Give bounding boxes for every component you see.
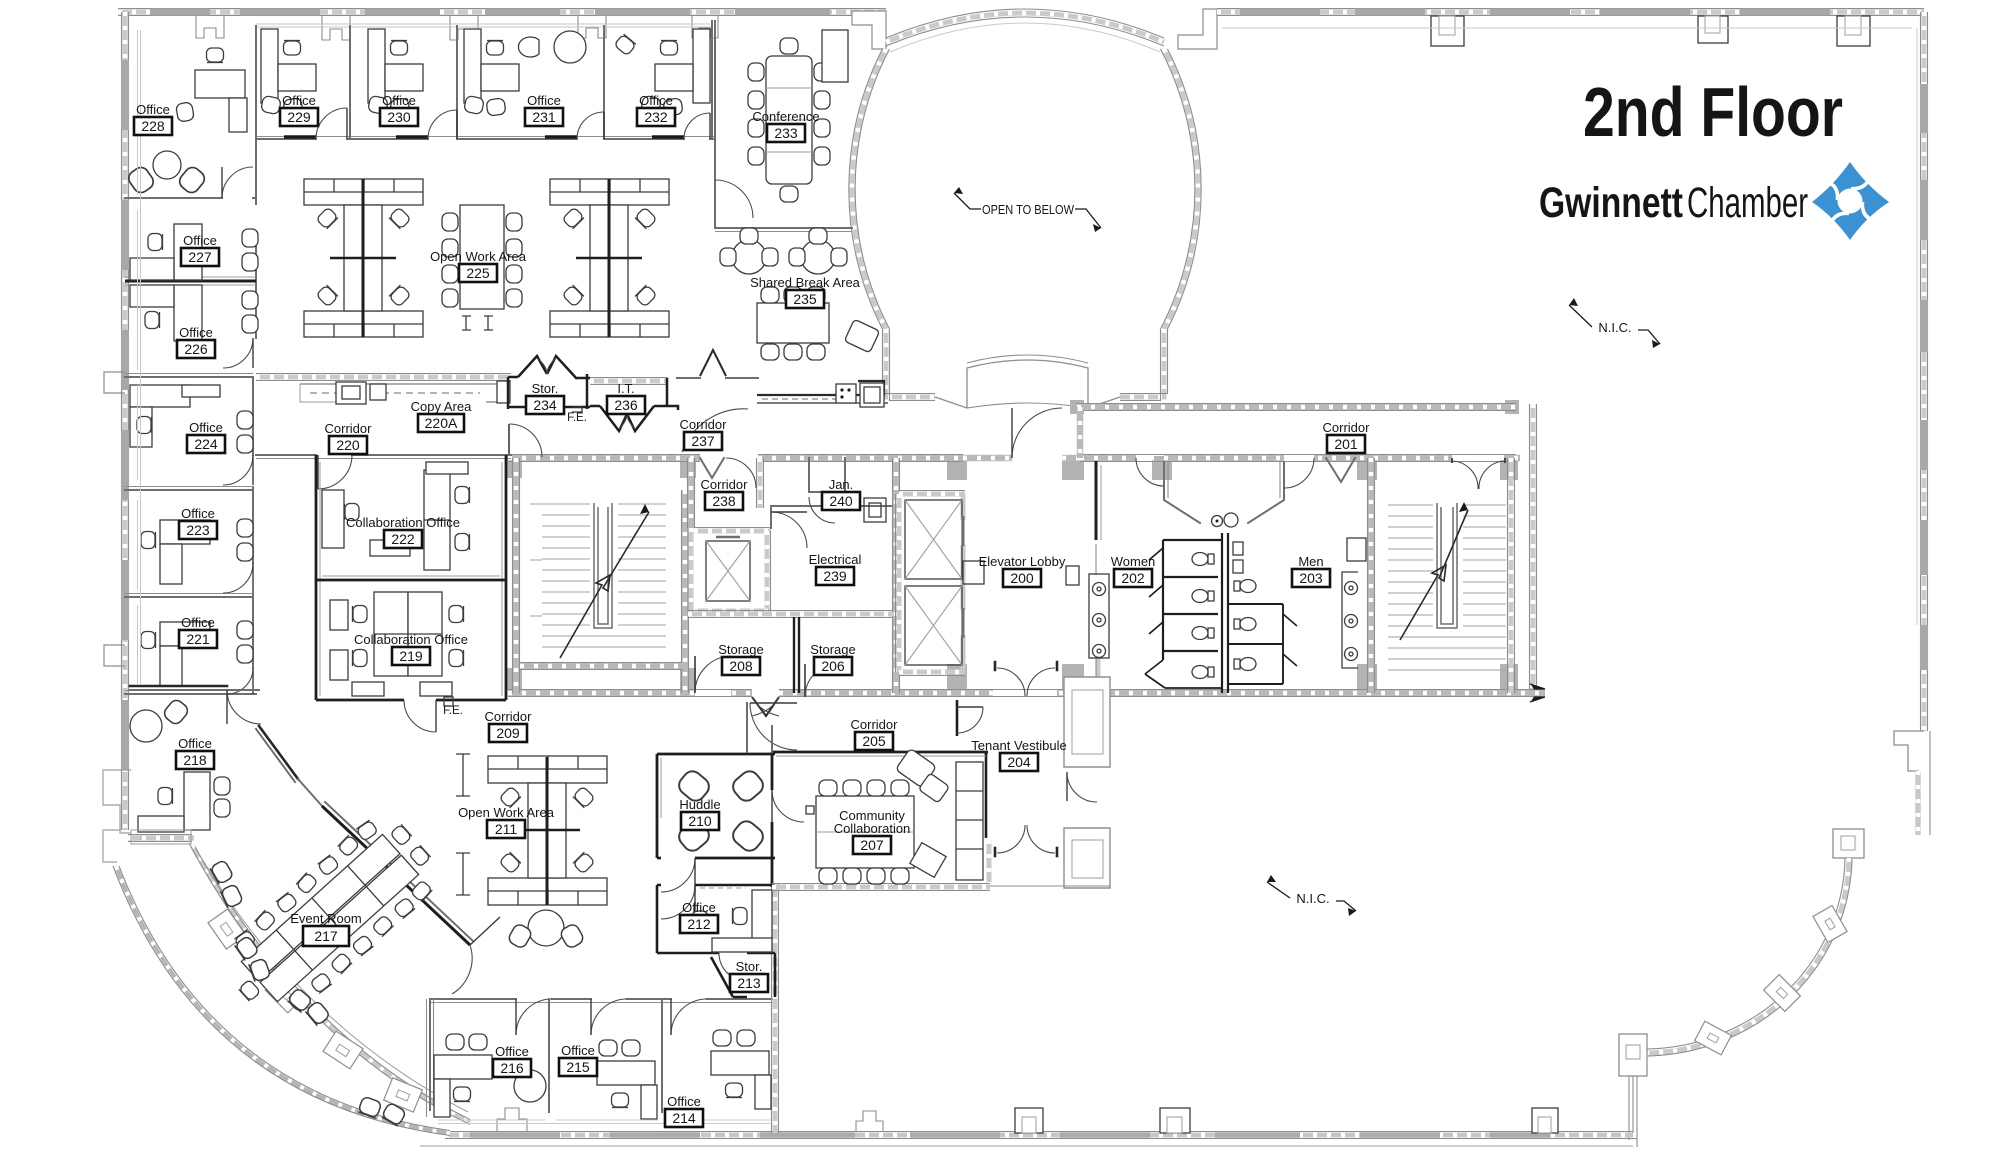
svg-text:234: 234 <box>533 397 557 413</box>
svg-text:Office: Office <box>183 233 217 248</box>
svg-text:Office: Office <box>181 506 215 521</box>
svg-text:2nd Floor: 2nd Floor <box>1583 73 1843 151</box>
svg-text:Corridor: Corridor <box>851 717 899 732</box>
svg-text:207: 207 <box>860 837 884 853</box>
svg-text:Office: Office <box>181 615 215 630</box>
svg-text:I.T.: I.T. <box>617 381 634 396</box>
svg-text:201: 201 <box>1334 436 1358 452</box>
svg-text:202: 202 <box>1121 570 1145 586</box>
svg-text:Office: Office <box>282 93 316 108</box>
svg-text:213: 213 <box>737 975 761 991</box>
svg-text:226: 226 <box>184 341 208 357</box>
svg-text:232: 232 <box>644 109 668 125</box>
svg-text:217: 217 <box>314 928 338 944</box>
svg-text:Open Work Area: Open Work Area <box>430 249 527 264</box>
svg-text:206: 206 <box>821 658 845 674</box>
svg-text:Office: Office <box>382 93 416 108</box>
svg-text:F.E.: F.E. <box>443 705 463 717</box>
svg-text:211: 211 <box>495 821 518 837</box>
svg-text:Women: Women <box>1111 554 1156 569</box>
svg-text:225: 225 <box>466 265 490 281</box>
svg-text:Shared Break Area: Shared Break Area <box>750 275 861 290</box>
svg-text:222: 222 <box>391 531 415 547</box>
svg-text:239: 239 <box>823 568 847 584</box>
svg-text:Corridor: Corridor <box>1323 420 1371 435</box>
svg-text:Corridor: Corridor <box>680 417 728 432</box>
svg-text:Elevator Lobby: Elevator Lobby <box>979 554 1066 569</box>
svg-text:Office: Office <box>179 325 213 340</box>
svg-text:215: 215 <box>566 1059 590 1075</box>
svg-text:Stor.: Stor. <box>532 381 559 396</box>
svg-text:228: 228 <box>141 118 165 134</box>
svg-text:224: 224 <box>194 436 218 452</box>
svg-text:Men: Men <box>1298 554 1323 569</box>
svg-text:Storage: Storage <box>718 642 764 657</box>
svg-text:235: 235 <box>793 291 817 307</box>
svg-text:Tenant Vestibule: Tenant Vestibule <box>971 738 1066 753</box>
svg-text:Storage: Storage <box>810 642 856 657</box>
svg-text:209: 209 <box>496 725 520 741</box>
svg-text:Office: Office <box>178 736 212 751</box>
svg-text:Open Work Area: Open Work Area <box>458 805 555 820</box>
svg-text:Event Room: Event Room <box>290 911 362 926</box>
svg-text:204: 204 <box>1007 754 1031 770</box>
svg-text:220A: 220A <box>425 415 458 431</box>
svg-text:Office: Office <box>667 1094 701 1109</box>
svg-text:233: 233 <box>774 125 798 141</box>
svg-text:N.I.C.: N.I.C. <box>1598 320 1631 335</box>
svg-text:Huddle: Huddle <box>679 797 720 812</box>
svg-text:Collaboration Office: Collaboration Office <box>346 515 460 530</box>
svg-text:Office: Office <box>495 1044 529 1059</box>
svg-text:Chamber: Chamber <box>1687 179 1808 227</box>
svg-text:Office: Office <box>682 900 716 915</box>
svg-text:231: 231 <box>532 109 556 125</box>
svg-text:208: 208 <box>729 658 753 674</box>
svg-text:212: 212 <box>687 916 711 932</box>
svg-text:F.E.: F.E. <box>567 412 587 424</box>
svg-text:Corridor: Corridor <box>325 421 373 436</box>
svg-text:210: 210 <box>688 813 712 829</box>
svg-text:219: 219 <box>399 648 423 664</box>
svg-text:220: 220 <box>336 437 360 453</box>
svg-text:Corridor: Corridor <box>701 477 749 492</box>
svg-text:214: 214 <box>672 1110 696 1126</box>
svg-text:Electrical: Electrical <box>809 552 862 567</box>
svg-text:236: 236 <box>614 397 638 413</box>
svg-text:223: 223 <box>186 522 210 538</box>
svg-text:240: 240 <box>829 493 853 509</box>
svg-text:OPEN TO BELOW: OPEN TO BELOW <box>982 202 1075 217</box>
svg-text:Office: Office <box>189 420 223 435</box>
svg-text:Jan.: Jan. <box>829 477 854 492</box>
svg-text:Collaboration: Collaboration <box>834 821 911 836</box>
svg-text:Office: Office <box>136 102 170 117</box>
svg-text:200: 200 <box>1010 570 1034 586</box>
svg-text:221: 221 <box>186 631 210 647</box>
svg-text:205: 205 <box>862 733 886 749</box>
svg-text:238: 238 <box>712 493 736 509</box>
svg-text:227: 227 <box>188 249 212 265</box>
svg-text:Office: Office <box>561 1043 595 1058</box>
svg-text:230: 230 <box>387 109 411 125</box>
svg-text:Office: Office <box>639 93 673 108</box>
svg-text:229: 229 <box>287 109 311 125</box>
svg-text:Copy Area: Copy Area <box>411 399 472 414</box>
svg-text:218: 218 <box>183 752 207 768</box>
svg-text:Collaboration Office: Collaboration Office <box>354 632 468 647</box>
svg-text:Conference: Conference <box>752 109 819 124</box>
svg-text:Gwinnett: Gwinnett <box>1539 179 1683 227</box>
svg-text:N.I.C.: N.I.C. <box>1296 891 1329 906</box>
svg-text:Office: Office <box>527 93 561 108</box>
svg-text:Stor.: Stor. <box>736 959 763 974</box>
svg-text:Corridor: Corridor <box>485 709 533 724</box>
svg-text:216: 216 <box>500 1060 524 1076</box>
svg-text:203: 203 <box>1299 570 1323 586</box>
svg-text:237: 237 <box>691 433 715 449</box>
